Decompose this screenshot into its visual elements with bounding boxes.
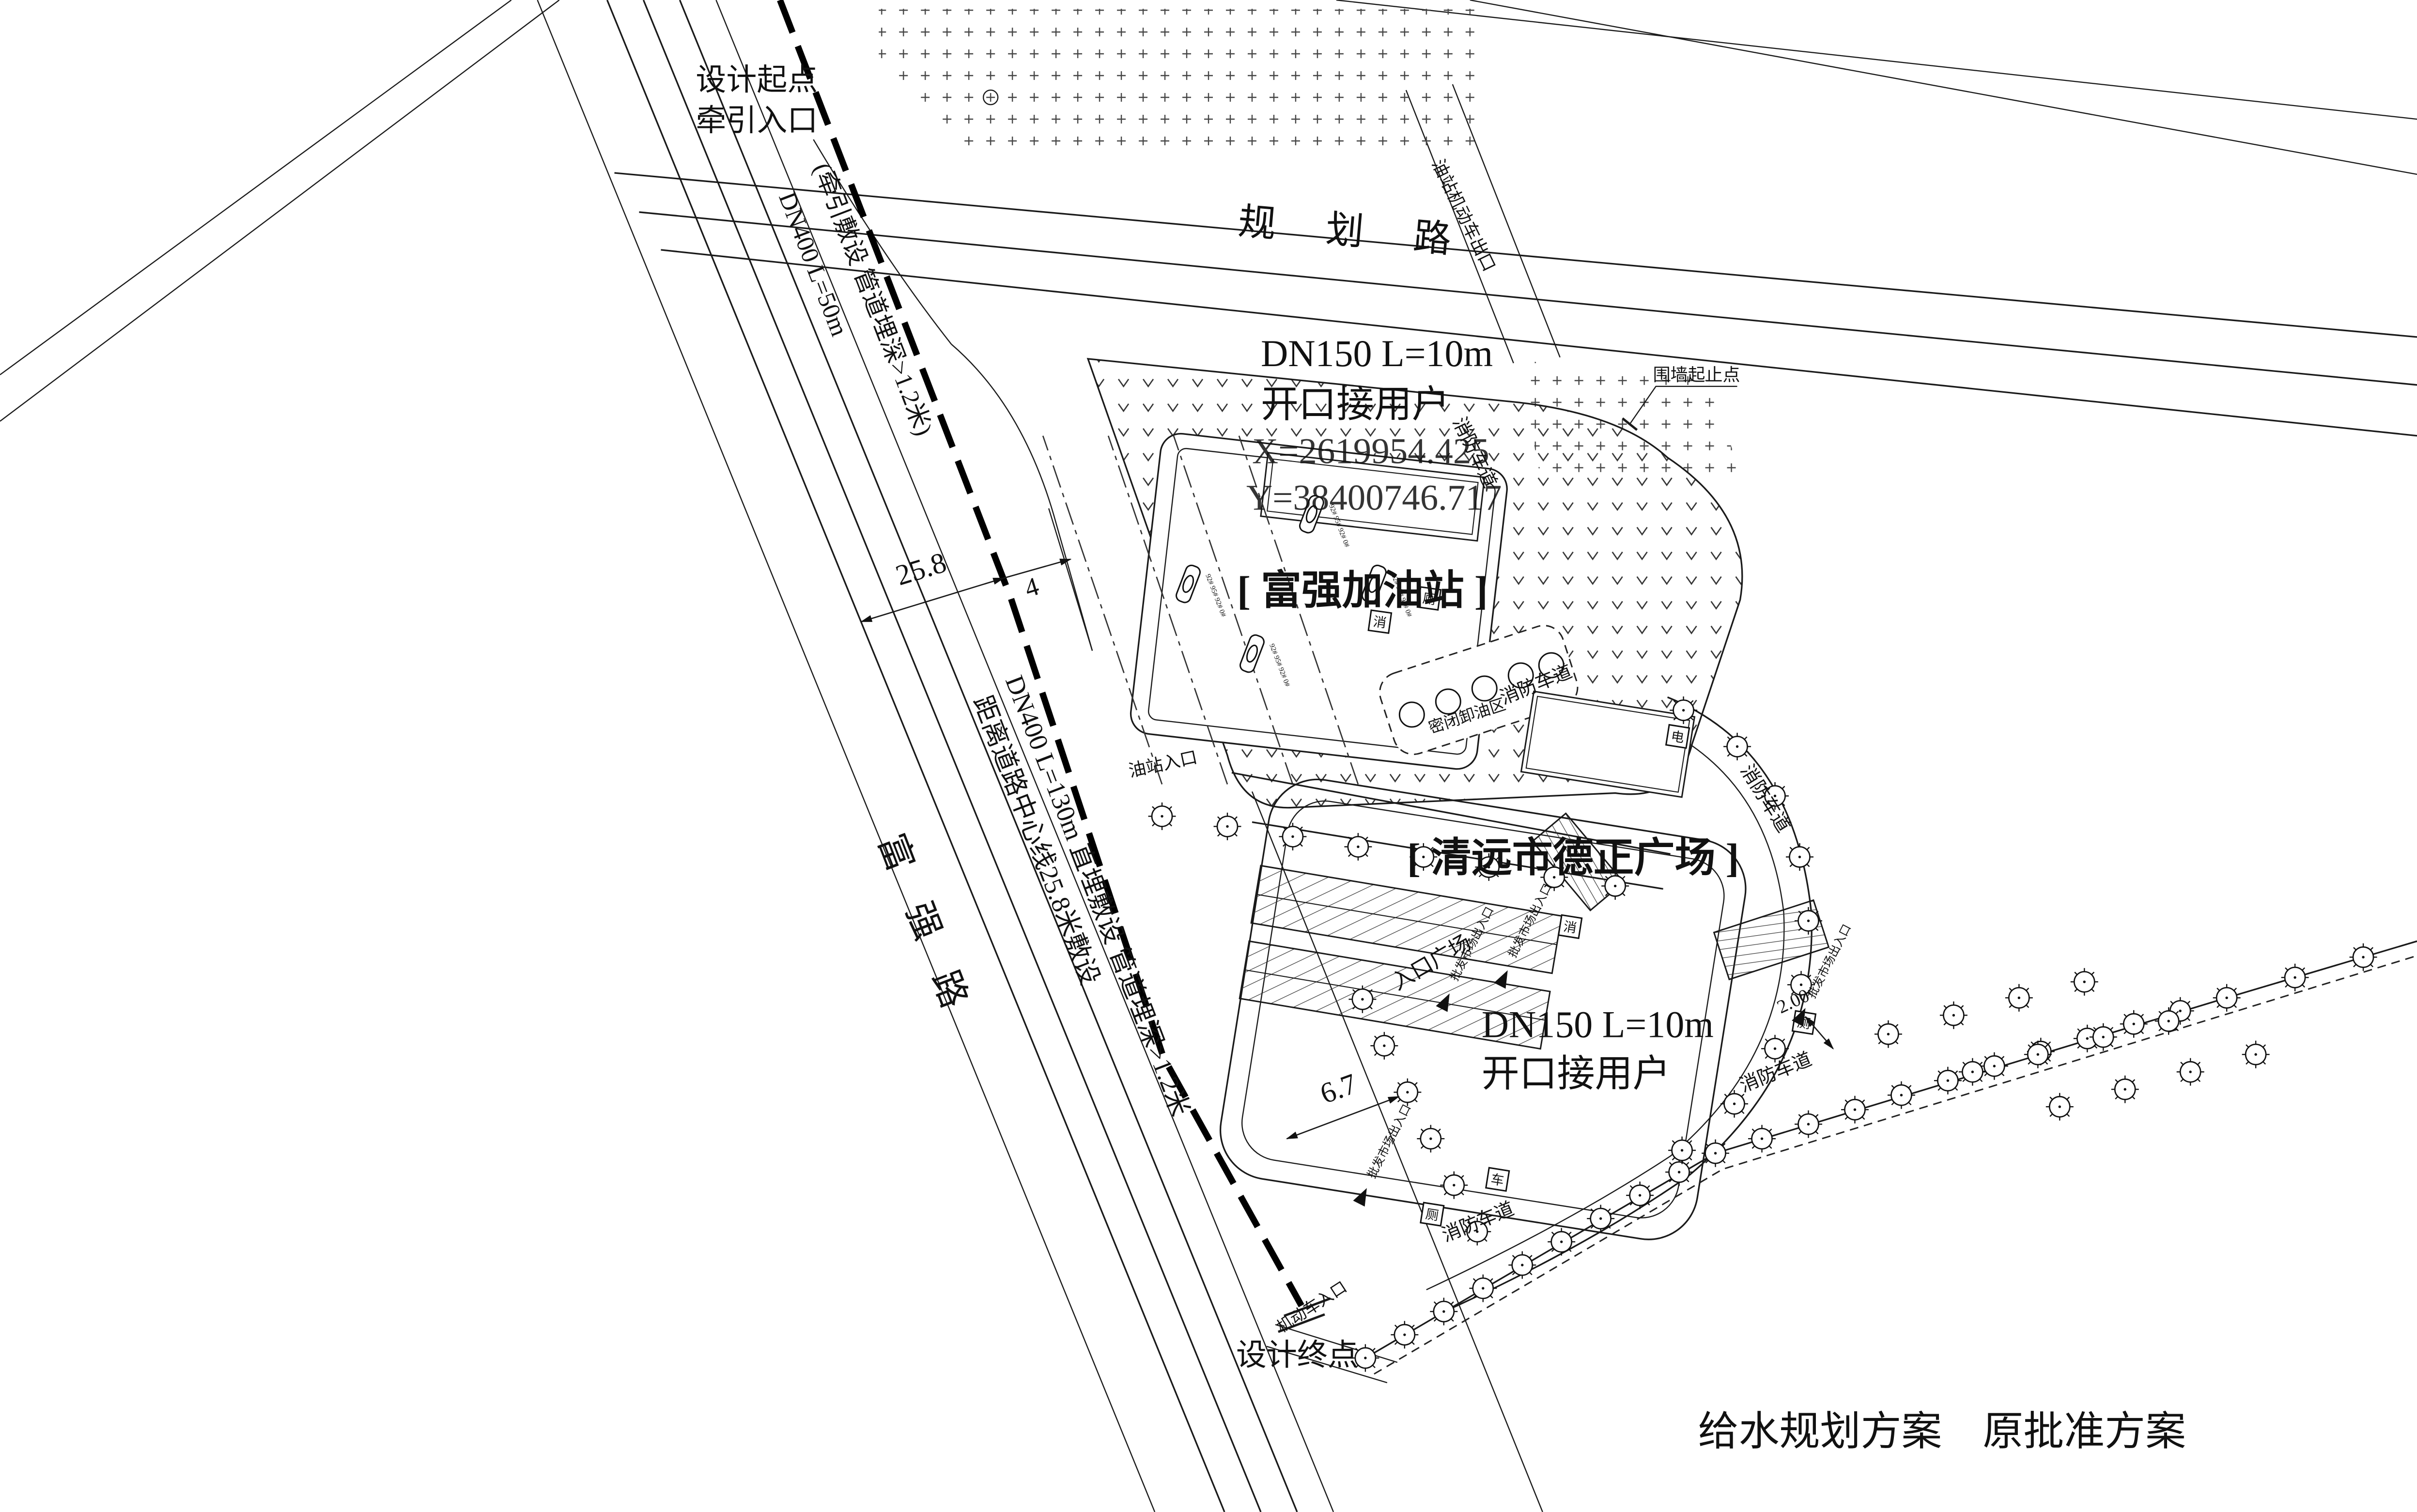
fuqiang-road-char-1: 富: [870, 829, 921, 877]
design-start-line2: 牵引入口: [696, 104, 818, 138]
dimension-6-7: 6.7: [1287, 1067, 1399, 1139]
electric-symbol: 电: [1670, 729, 1685, 745]
wall-endpoint-label: 围墙起止点: [1653, 365, 1740, 385]
fuqiang-road-char-2: 强: [898, 897, 948, 945]
toilet-symbol: 厕: [1425, 1207, 1440, 1223]
market-gate-label: 批发市场出入口: [1365, 1102, 1413, 1181]
plaza-parcel: 电 消 厕 车 厕: [1213, 692, 2417, 1512]
dim-6-7-value: 6.7: [1316, 1067, 1361, 1110]
gas-station-title: [ 富强加油站 ]: [1237, 569, 1488, 614]
dim-25-8-value: 25.8: [892, 546, 950, 592]
sheet-title: 给水规划方案 原批准方案: [1698, 1409, 2186, 1454]
fire-symbol: 消: [1372, 614, 1387, 630]
pipe-lower-spec: DN400 L=130m 直埋敷设 管道埋深>1.2米: [1000, 671, 1195, 1120]
corner-lines: [0, 0, 559, 421]
station-entrance-label: 油站入口: [1127, 747, 1199, 781]
dim-4-value: 4: [1021, 571, 1042, 603]
vehicle-entrance-label: 机动车入口: [1273, 1278, 1350, 1337]
north-connection-note: 开口接用户: [1261, 384, 1450, 425]
design-start-line1: 设计起点: [696, 63, 818, 97]
north-connection-spec: DN150 L=10m: [1261, 333, 1493, 374]
north-connection-y: Y=38400746.717: [1246, 478, 1502, 518]
dotted-area-top: [879, 9, 1479, 148]
dimension-4: 4: [1004, 559, 1070, 603]
site-plan-canvas: 92# 95# 92# 0# 92# 95# 92# 0# 92# 95# 92…: [0, 0, 2417, 1512]
vehicle-symbol: 车: [1490, 1172, 1505, 1188]
north-connection-x: X=2619954.425: [1252, 432, 1489, 472]
fuqiang-road-char-3: 路: [924, 965, 975, 1014]
south-connection-spec: DN150 L=10m: [1482, 1003, 1714, 1045]
fire-symbol: 消: [1563, 919, 1578, 936]
plaza-title: [ 清远市德正广场 ]: [1407, 835, 1739, 880]
design-end-label: 设计终点: [1236, 1338, 1358, 1372]
south-connection-note: 开口接用户: [1482, 1053, 1671, 1095]
planning-road-label: 规 划 路: [1237, 201, 1473, 262]
